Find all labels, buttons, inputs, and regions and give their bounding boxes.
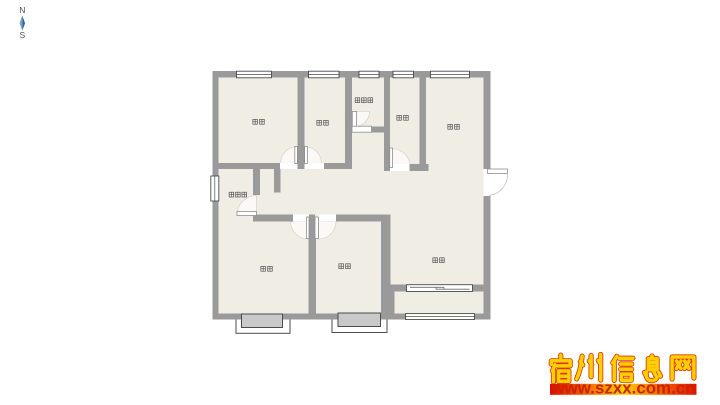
svg-text:S: S <box>19 30 25 40</box>
svg-text:N: N <box>19 5 25 15</box>
svg-text:www.szxx.com.cn: www.szxx.com.cn <box>550 380 695 398</box>
